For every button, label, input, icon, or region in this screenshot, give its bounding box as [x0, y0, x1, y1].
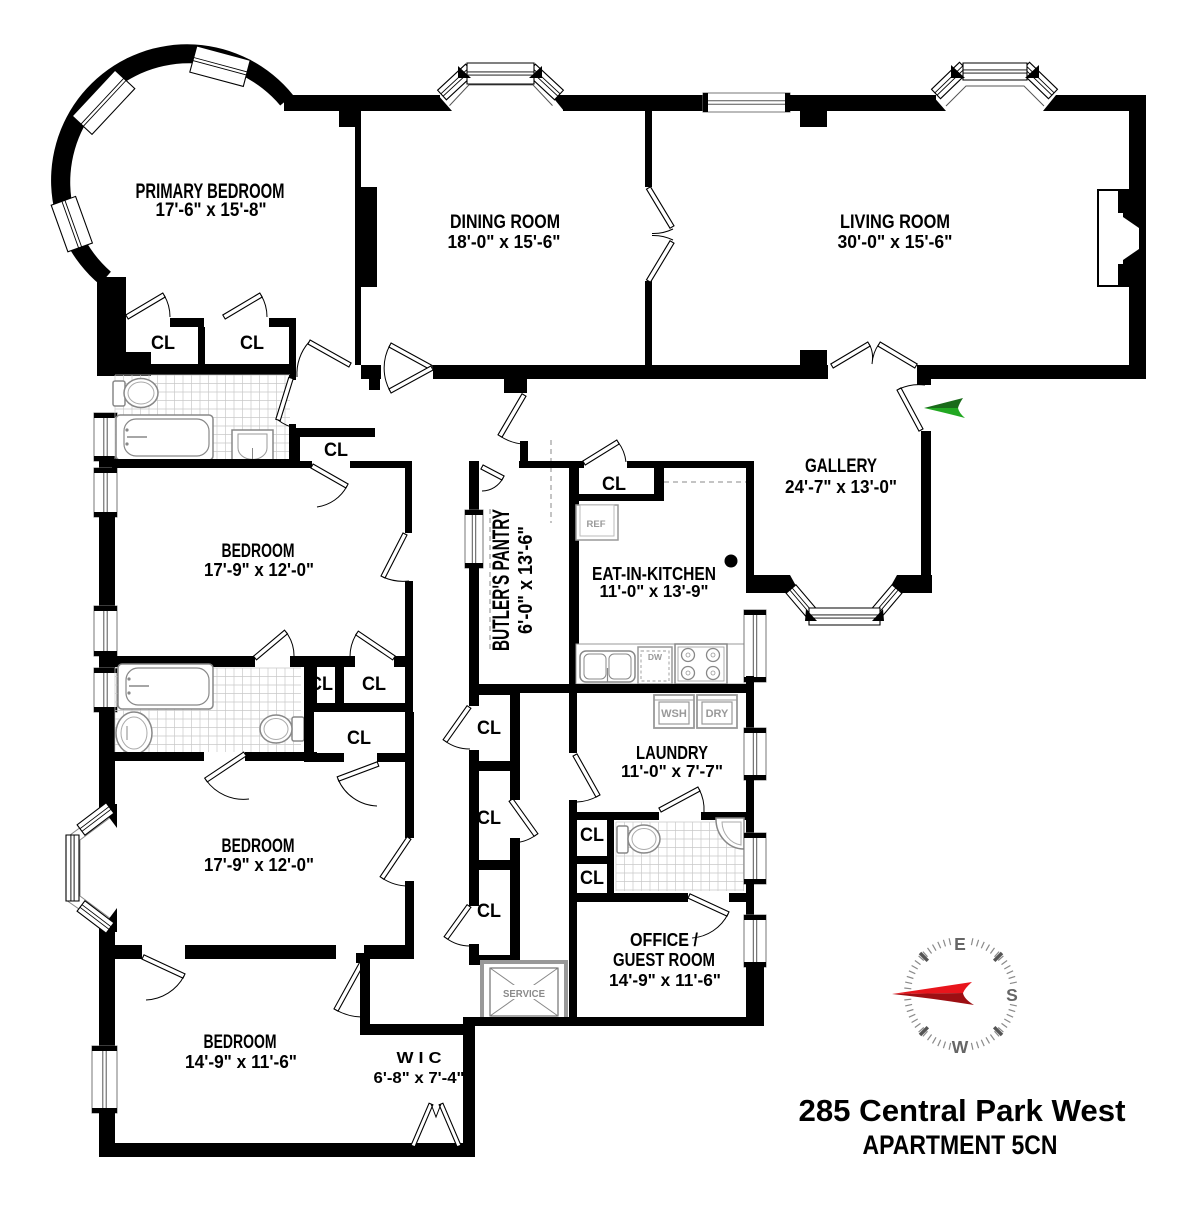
svg-text:30'-0" x 15'-6": 30'-0" x 15'-6"	[838, 231, 953, 252]
svg-text:CL: CL	[240, 332, 264, 354]
svg-text:24'-7" x 13'-0": 24'-7" x 13'-0"	[785, 476, 897, 497]
svg-text:14'-9" x 11'-6": 14'-9" x 11'-6"	[609, 970, 721, 990]
svg-text:CL: CL	[580, 824, 604, 846]
svg-text:11'-0" x 13'-9": 11'-0" x 13'-9"	[600, 581, 709, 601]
svg-text:6'-0" x 13'-6": 6'-0" x 13'-6"	[515, 526, 537, 634]
svg-text:DINING ROOM: DINING ROOM	[450, 211, 560, 233]
svg-text:17'-9" x 12'-0": 17'-9" x 12'-0"	[204, 560, 314, 580]
svg-text:DRY: DRY	[706, 708, 729, 720]
svg-text:LIVING ROOM: LIVING ROOM	[840, 211, 950, 233]
svg-text:GUEST ROOM: GUEST ROOM	[613, 950, 715, 970]
svg-text:CL: CL	[151, 332, 175, 354]
svg-text:BUTLER'S PANTRY: BUTLER'S PANTRY	[488, 509, 515, 651]
svg-text:BEDROOM: BEDROOM	[222, 835, 295, 857]
svg-text:REF: REF	[587, 519, 606, 530]
svg-text:CL: CL	[477, 807, 501, 829]
svg-text:CL: CL	[362, 673, 386, 695]
svg-text:285 Central Park West: 285 Central Park West	[799, 1094, 1126, 1128]
svg-text:CL: CL	[347, 727, 371, 749]
svg-text:CL: CL	[580, 867, 604, 889]
svg-text:SERVICE: SERVICE	[503, 988, 545, 1000]
svg-text:CL: CL	[477, 900, 501, 922]
svg-text:11'-0" x 7'-7": 11'-0" x 7'-7"	[621, 761, 723, 781]
svg-text:CL: CL	[324, 439, 348, 461]
svg-text:WSH: WSH	[661, 708, 687, 720]
svg-text:18'-0" x 15'-6": 18'-0" x 15'-6"	[448, 231, 561, 252]
svg-text:6'-8" x 7'-4": 6'-8" x 7'-4"	[374, 1070, 465, 1087]
svg-text:W I C: W I C	[397, 1050, 442, 1067]
svg-text:17'-9" x 12'-0": 17'-9" x 12'-0"	[204, 855, 314, 875]
svg-text:DW: DW	[648, 652, 663, 662]
svg-text:LAUNDRY: LAUNDRY	[636, 743, 708, 763]
svg-text:S: S	[1006, 985, 1018, 1005]
svg-text:17'-6" x 15'-8": 17'-6" x 15'-8"	[156, 200, 267, 221]
svg-text:W: W	[952, 1037, 969, 1057]
svg-text:CL: CL	[309, 673, 333, 695]
svg-text:BEDROOM: BEDROOM	[222, 540, 295, 562]
svg-text:APARTMENT 5CN: APARTMENT 5CN	[863, 1130, 1058, 1160]
svg-text:CL: CL	[602, 473, 626, 495]
svg-text:GALLERY: GALLERY	[805, 455, 877, 477]
svg-text:OFFICE /: OFFICE /	[630, 930, 698, 950]
svg-text:E: E	[954, 934, 966, 954]
svg-text:BEDROOM: BEDROOM	[204, 1031, 277, 1053]
svg-text:14'-9" x 11'-6": 14'-9" x 11'-6"	[185, 1052, 297, 1072]
svg-text:CL: CL	[477, 717, 501, 739]
